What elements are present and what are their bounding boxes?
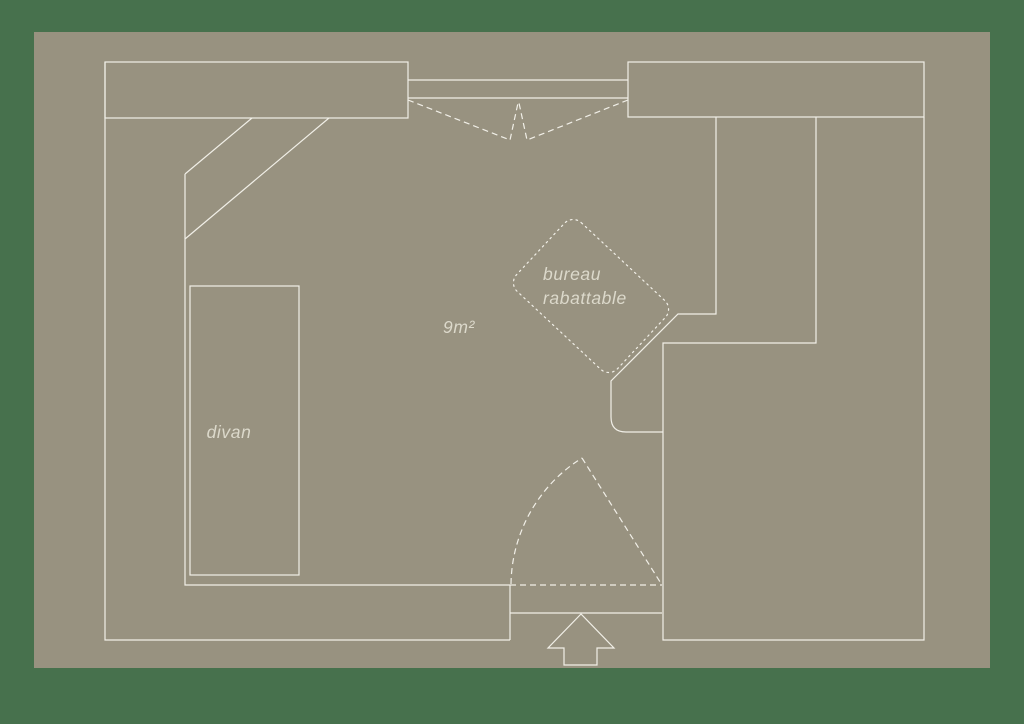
desk-label-line1: bureau <box>543 264 601 284</box>
desk-label-line2: rabattable <box>543 288 627 308</box>
floor-plan-page: divan 9m² bureau rabattable <box>0 0 1024 724</box>
area-label: 9m² <box>443 317 476 337</box>
floor-plan-drawing: divan 9m² bureau rabattable <box>0 0 1024 724</box>
divan-label: divan <box>207 422 252 442</box>
